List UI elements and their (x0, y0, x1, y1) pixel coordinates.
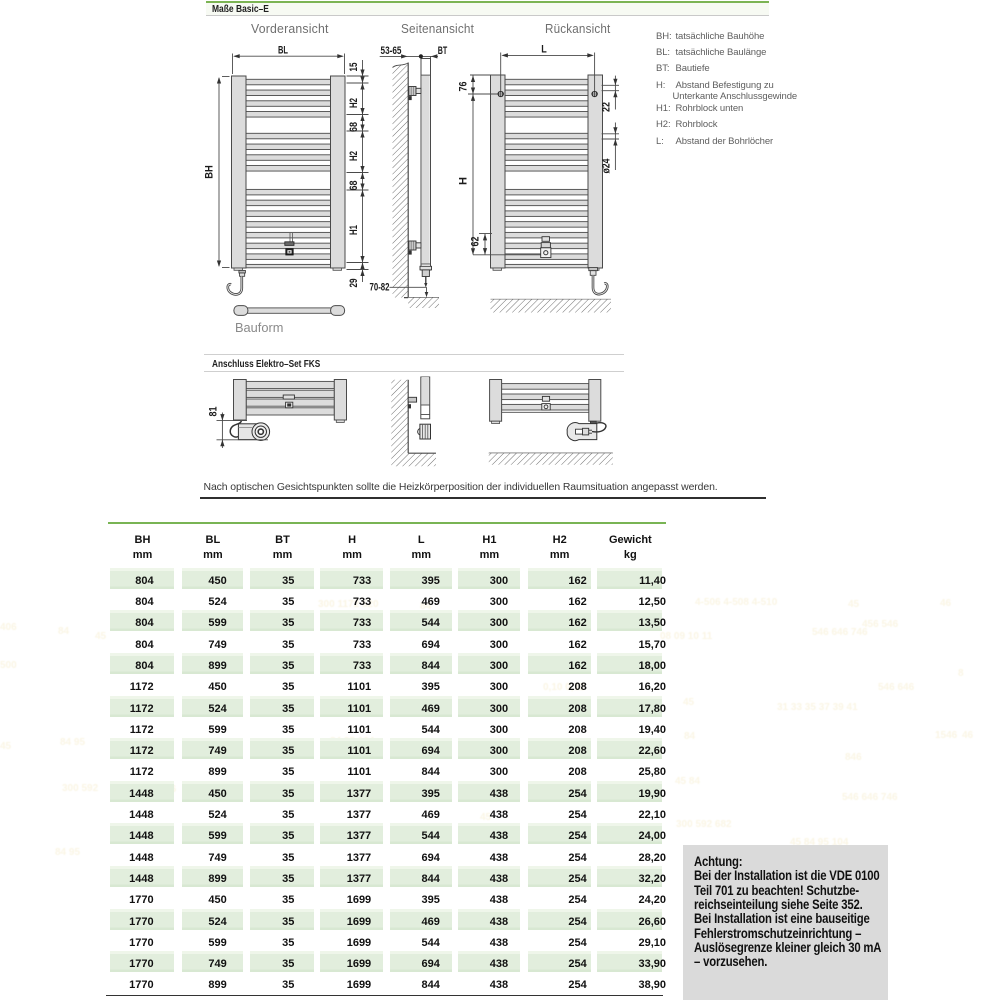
svg-text:68: 68 (348, 122, 360, 132)
svg-text:BT: BT (438, 45, 448, 57)
svg-text:29: 29 (348, 279, 360, 288)
svg-text:76: 76 (457, 82, 469, 92)
svg-text:70-82: 70-82 (370, 281, 390, 293)
svg-text:H: H (457, 177, 469, 185)
svg-text:ø24: ø24 (600, 158, 612, 174)
svg-text:22: 22 (600, 102, 612, 112)
svg-text:L: L (541, 44, 547, 56)
svg-text:H2: H2 (348, 151, 360, 161)
svg-text:H2: H2 (348, 98, 360, 108)
svg-text:81: 81 (208, 407, 220, 417)
svg-text:BL: BL (278, 45, 288, 57)
svg-text:BH: BH (204, 165, 216, 179)
svg-text:53-65: 53-65 (381, 45, 402, 57)
svg-text:H1: H1 (348, 225, 360, 235)
svg-text:15: 15 (348, 63, 360, 72)
svg-text:62: 62 (470, 237, 482, 247)
svg-text:68: 68 (348, 181, 360, 191)
